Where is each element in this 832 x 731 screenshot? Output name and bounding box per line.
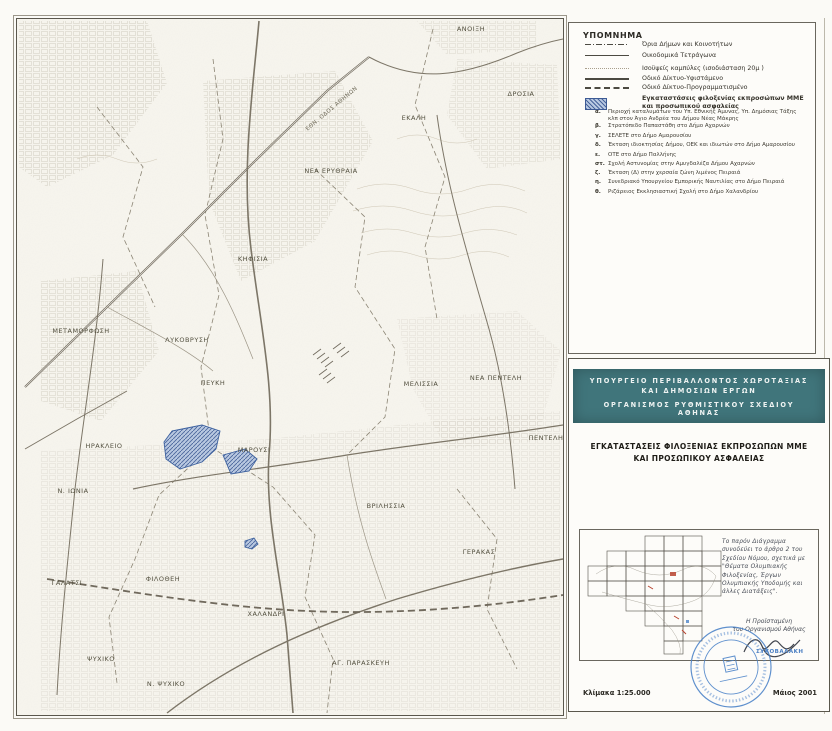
map-label-nea-ionia: Ν. ΙΩΝΙΑ [57, 487, 88, 495]
map-label-vrilissia: ΒΡΙΛΗΣΣΙΑ [367, 502, 406, 510]
item-letter: β. [595, 123, 608, 129]
title-block: ΥΠΟΥΡΓΕΙΟ ΠΕΡΙΒΑΛΛΟΝΤΟΣ ΧΩΡΟΤΑΞΙΑΣ ΚΑΙ Δ… [568, 358, 830, 712]
map-label-penteli: ΠΕΝΤΕΛΗ [529, 434, 564, 442]
map-label-gerakas: ΓΕΡΑΚΑΣ [463, 548, 495, 556]
item-text: Στρατόπεδο Παπαστάθη στο Δήμο Αχαρνών [608, 123, 730, 130]
legend-label: Ισοϋψείς καμπύλες (ισοδιάσταση 20μ ) [642, 65, 764, 73]
agency-band: ΥΠΟΥΡΓΕΙΟ ΠΕΡΙΒΑΛΛΟΝΤΟΣ ΧΩΡΟΤΑΞΙΑΣ ΚΑΙ Δ… [573, 369, 825, 423]
road-planned-line-symbol [585, 87, 629, 89]
item-letter: στ. [595, 161, 608, 167]
map-label-galatsi: ΓΑΛΑΤΣΙ [52, 579, 82, 587]
legend-label: Οδικό Δίκτυο-Προγραμματισμένο [642, 84, 748, 92]
legend-row-boundary: Όρια Δήμων και Κοινοτήτων [585, 41, 807, 49]
legend-subitem-b: β.Στρατόπεδο Παπαστάθη στο Δήμο Αχαρνών [595, 123, 807, 130]
map-label-nea-erythraia: ΝΕΑ ΕΡΥΘΡΑΙΑ [304, 167, 357, 175]
item-text: Σχολή Αστυνομίας στην Αμυγδαλέζα Δήμου Α… [608, 161, 755, 168]
date-label: Μάιος 2001 [773, 689, 817, 697]
legend-subitem-a: α.Περιοχή καταλυμάτων του Υπ. Εθνικής Άμ… [595, 109, 807, 123]
item-text: Συνεδριακό Υπουργείου Εμπορικής Ναυτιλία… [608, 179, 784, 186]
official-stamp [687, 623, 775, 711]
scale-label: Κλίμακα 1:25.000 [583, 689, 650, 697]
map-label-psychiko: ΨΥΧΙΚΟ [87, 655, 115, 663]
map-label-lykovrysi: ΛΥΚΟΒΡΥΣΗ [165, 336, 209, 344]
map-area: ΑΝΟΙΞΗ ΔΡΟΣΙΑ ΕΚΑΛΗ ΝΕΑ ΕΡΥΘΡΑΙΑ ΚΗΦΙΣΙΑ… [16, 18, 564, 716]
scanned-map-sheet: ΑΝΟΙΞΗ ΔΡΟΣΙΑ ΕΚΑΛΗ ΝΕΑ ΕΡΥΘΡΑΙΑ ΚΗΦΙΣΙΑ… [0, 0, 832, 731]
legend-label: Οικοδομικά Τετράγωνα [642, 52, 716, 60]
item-letter: ζ. [595, 170, 608, 176]
legend-subitem-d: δ.Έκταση ιδιοκτησίας Δήμου, ΟΕΚ και ιδιω… [595, 142, 807, 149]
handwritten-note: Το παρόν Διάγραμμα συνοδεύει το άρθρο 2 … [722, 538, 812, 597]
city-blocks-line-symbol [585, 55, 629, 56]
legend-title: ΥΠΟΜΝΗΜΑ [583, 31, 643, 40]
map-label-marousi: ΜΑΡΟΥΣΙ [238, 446, 271, 454]
map-label-kifisia: ΚΗΦΙΣΙΑ [238, 255, 268, 263]
legend-subitem-z: ζ.Έκταση (Δ) στην χερσαία ζώνη λιμένος Π… [595, 170, 807, 177]
map-label-drosia: ΔΡΟΣΙΑ [508, 90, 535, 98]
map-label-ekali: ΕΚΑΛΗ [402, 114, 427, 122]
contour-line-symbol [585, 68, 629, 69]
item-letter: α. [595, 109, 608, 115]
organization-name: ΟΡΓΑΝΙΣΜΟΣ ΡΥΘΜΙΣΤΙΚΟΥ ΣΧΕΔΙΟΥ ΑΘΗΝΑΣ [583, 401, 815, 417]
map-label-metamorfosi: ΜΕΤΑΜΟΡΦΩΣΗ [52, 327, 109, 335]
map-label-filothei: ΦΙΛΟΘΕΗ [146, 575, 180, 583]
item-text: Περιοχή καταλυμάτων του Υπ. Εθνικής Άμυν… [608, 109, 807, 123]
item-text: ΣΕΛΕΤΕ στο Δήμο Αμαρουσίου [608, 133, 691, 140]
legend-subitem-th: θ.Ριζάρειος Εκκλησιαστική Σχολή στο Δήμο… [595, 189, 807, 196]
item-text: ΟΤΕ στο Δήμο Παλλήνης [608, 152, 676, 159]
item-letter: ε. [595, 152, 608, 158]
legend-subitem-h: η.Συνεδριακό Υπουργείου Εμπορικής Ναυτιλ… [595, 179, 807, 186]
legend-label: Οδικό Δίκτυο-Υφιστάμενο [642, 75, 723, 83]
item-letter: θ. [595, 189, 608, 195]
item-letter: γ. [595, 133, 608, 139]
item-text: Ριζάρειος Εκκλησιαστική Σχολή στο Δήμο Χ… [608, 189, 758, 196]
map-label-irakleio: ΗΡΑΚΛΕΙΟ [85, 442, 122, 450]
legend-subitem-st: στ.Σχολή Αστυνομίας στην Αμυγδαλέζα Δήμο… [595, 161, 807, 168]
item-letter: η. [595, 179, 608, 185]
ministry-name: ΥΠΟΥΡΓΕΙΟ ΠΕΡΙΒΑΛΛΟΝΤΟΣ ΧΩΡΟΤΑΞΙΑΣ ΚΑΙ Δ… [583, 376, 815, 396]
map-label-anixi: ΑΝΟΙΞΗ [457, 25, 485, 33]
item-text: Έκταση (Δ) στην χερσαία ζώνη λιμένος Πει… [608, 170, 740, 177]
legend-row-road-existing: Οδικό Δίκτυο-Υφιστάμενο [585, 75, 807, 83]
item-letter: δ. [595, 142, 608, 148]
legend-label: Όρια Δήμων και Κοινοτήτων [642, 41, 732, 49]
map-label-chalandri: ΧΑΛΑΝΔΡΙ [248, 610, 285, 618]
legend: ΥΠΟΜΝΗΜΑ Όρια Δήμων και Κοινοτήτων Οικοδ… [568, 22, 816, 354]
paper-grain [17, 19, 563, 715]
legend-subitem-g: γ.ΣΕΛΕΤΕ στο Δήμο Αμαρουσίου [595, 133, 807, 140]
map-label-n-psychiko: Ν. ΨΥΧΙΚΟ [147, 680, 185, 688]
map-drawing [17, 19, 563, 715]
map-label-pefki: ΠΕΥΚΗ [201, 379, 226, 387]
map-label-ag-paraskevi: ΑΓ. ΠΑΡΑΣΚΕΥΗ [332, 659, 390, 667]
map-label-melissia: ΜΕΛΙΣΣΙΑ [404, 380, 439, 388]
document-title: ΕΓΚΑΤΑΣΤΑΣΕΙΣ ΦΙΛΟΞΕΝΙΑΣ ΕΚΠΡΟΣΩΠΩΝ ΜΜΕ … [589, 441, 809, 465]
legend-subitem-e: ε.ΟΤΕ στο Δήμο Παλλήνης [595, 152, 807, 159]
legend-row-road-planned: Οδικό Δίκτυο-Προγραμματισμένο [585, 84, 807, 92]
item-text: Έκταση ιδιοκτησίας Δήμου, ΟΕΚ και ιδιωτώ… [608, 142, 795, 149]
municipal-boundary-line-symbol [585, 44, 629, 45]
legend-row-blocks: Οικοδομικά Τετράγωνα [585, 52, 807, 60]
road-existing-line-symbol [585, 78, 629, 80]
legend-row-contours: Ισοϋψείς καμπύλες (ισοδιάσταση 20μ ) [585, 65, 807, 73]
map-label-nea-penteli: ΝΕΑ ΠΕΝΤΕΛΗ [470, 374, 522, 382]
